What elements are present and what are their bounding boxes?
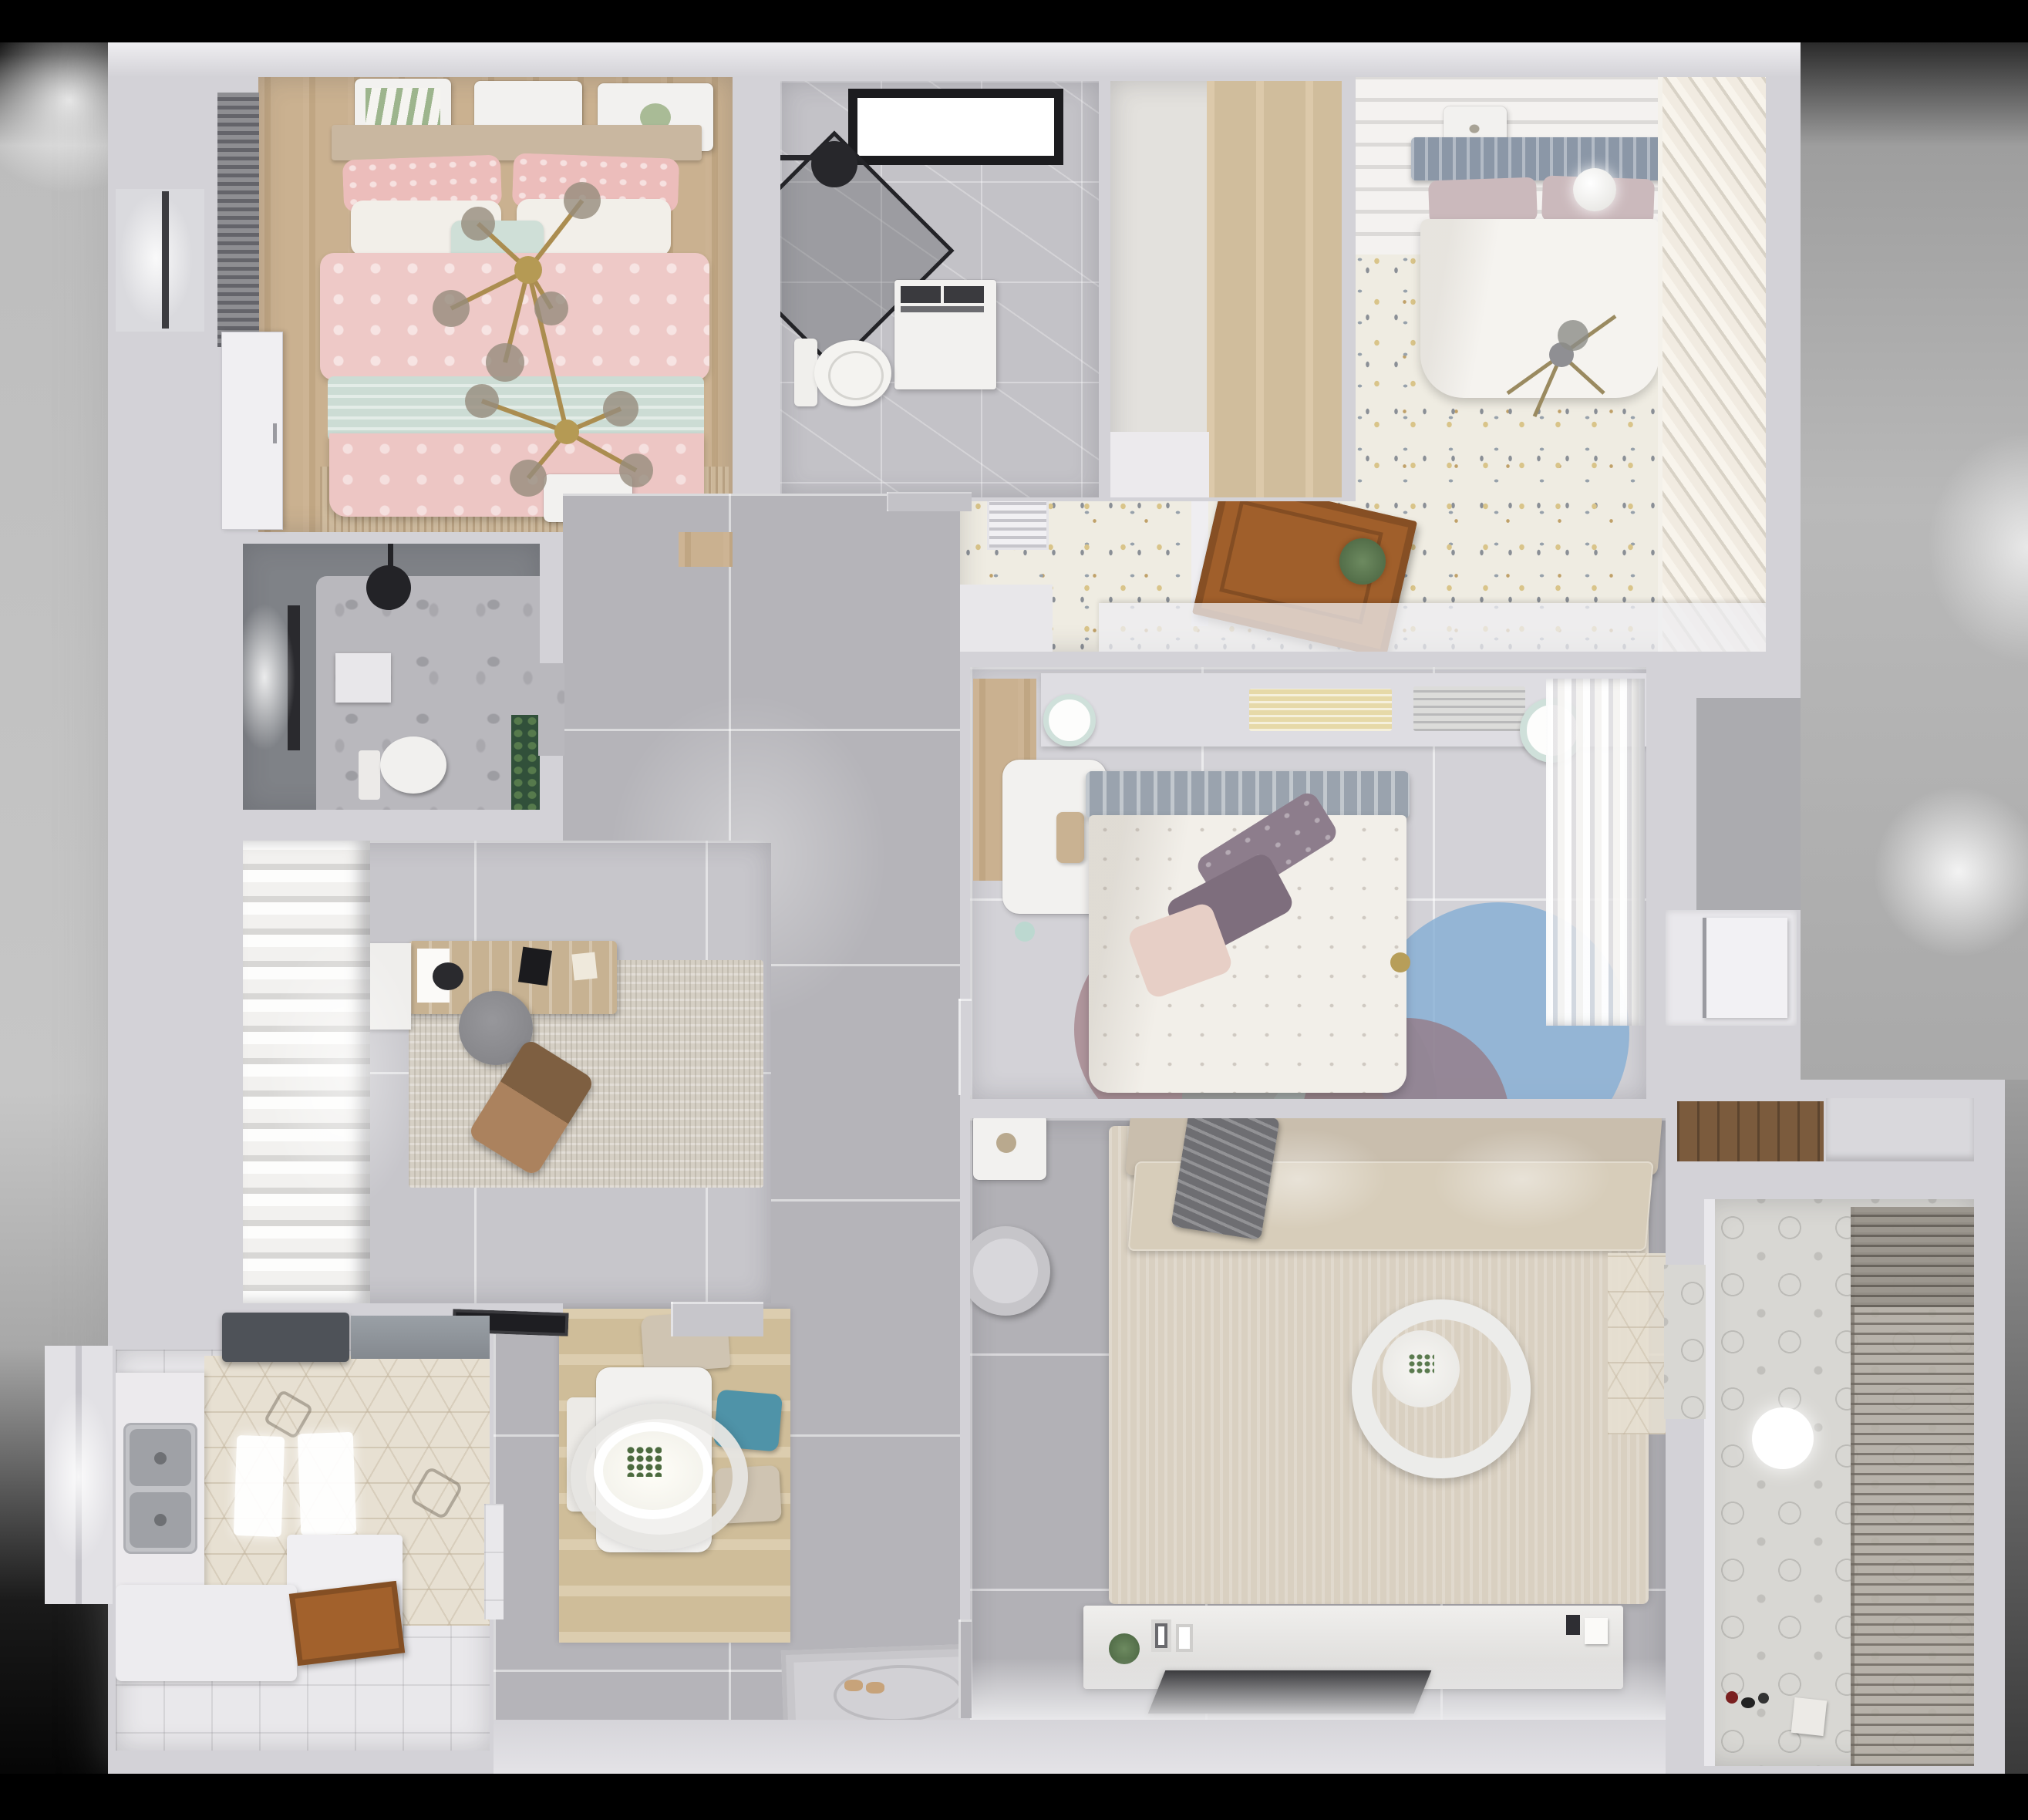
- study-laptop: [518, 947, 552, 986]
- living-bottom-fade: [970, 1658, 1666, 1720]
- sofa-sheen-2: [1429, 1129, 1615, 1229]
- bath2-toilet-tank: [359, 750, 380, 800]
- dining-pendant-greenery: [626, 1446, 662, 1477]
- kitchen-range-hood: [222, 1313, 349, 1362]
- room-master-bedroom: [970, 667, 1646, 1099]
- master-mint-bottle: [1015, 922, 1035, 942]
- bedroom2-sphere-lamp: [1573, 168, 1616, 211]
- living-side-table: [973, 1118, 1046, 1180]
- bedroom2-louvered-wardrobe: [1658, 77, 1766, 652]
- bedroom2-pillow-left: [1428, 177, 1538, 226]
- doorway-kitchen: [484, 1504, 504, 1619]
- room-bathroom-2: [243, 544, 540, 810]
- wall-top-highlight: [108, 42, 1801, 77]
- master-stool-left: [1043, 694, 1096, 747]
- sink-basin-bottom: [130, 1492, 191, 1548]
- kitchen-gray-counter: [351, 1316, 490, 1359]
- kitchen-island-counter: [116, 1585, 297, 1681]
- room-hallway-closet: [1110, 81, 1342, 497]
- doorway-balcony: [1664, 1265, 1706, 1419]
- room-bathroom-1: [780, 81, 1099, 497]
- bath1-toilet-bowl: [814, 340, 891, 406]
- console-frame-1: [1151, 1619, 1171, 1652]
- alcove-door-leaf: [1703, 918, 1787, 1018]
- doorway-living-dining: [958, 1619, 972, 1718]
- side-table-item: [996, 1133, 1016, 1153]
- doorway-bedroom1: [679, 532, 733, 567]
- balcony-niche-white-cabinet: [1826, 1098, 1974, 1161]
- closet-wood-floor: [1207, 81, 1342, 497]
- bath2-shower-mat: [335, 653, 391, 703]
- room-kitchen: [116, 1350, 490, 1751]
- bedroom2-ac-vent: [987, 496, 1049, 550]
- living-armchair-seat: [973, 1239, 1038, 1303]
- exterior-top-strip: [0, 0, 2028, 42]
- entry-shoes: [844, 1680, 863, 1691]
- coffee-table-sprig: [1408, 1353, 1434, 1375]
- master-headboard: [1086, 771, 1410, 819]
- study-desk-lamp: [433, 962, 463, 990]
- toilet-seat-line: [828, 351, 884, 400]
- doorway-study-dining: [671, 1302, 763, 1336]
- window-light: [120, 193, 193, 324]
- bedroom2-low-ledge-left: [960, 585, 1053, 652]
- kitchen-entry-door: [289, 1581, 405, 1666]
- bath1-shower-head: [811, 141, 857, 187]
- doormat-ornament: [833, 1663, 960, 1720]
- vanity-inlay-left: [901, 286, 941, 303]
- bath2-toilet-bowl: [380, 736, 446, 794]
- entry-doormat: [781, 1643, 960, 1720]
- living-hex-threshold: [1608, 1253, 1666, 1434]
- kitchen-window: [45, 1346, 113, 1604]
- bath1-skylight: [848, 89, 1063, 165]
- sink-drain-top: [154, 1452, 167, 1464]
- vanity-inlay-line: [901, 306, 984, 312]
- master-books-yellow: [1249, 689, 1392, 731]
- bedroom1-open-door-white: [221, 332, 283, 530]
- bath2-window-light: [243, 604, 295, 750]
- bedroom2-gold-ceiling-light: [1461, 270, 1662, 455]
- exterior-right-blob-2: [1928, 432, 2028, 663]
- balcony-pendant-light: [1752, 1407, 1814, 1469]
- bath1-vanity: [894, 280, 996, 389]
- study-notebook: [571, 952, 597, 981]
- balcony-toy-3: [1758, 1693, 1769, 1704]
- balcony-toy-1: [1726, 1691, 1738, 1704]
- exterior-right-blob: [1874, 787, 2028, 956]
- sink-basin-top: [130, 1429, 191, 1486]
- doorway-bath1: [887, 492, 972, 511]
- doorway-bath2: [538, 663, 564, 756]
- bath2-plant-strip: [511, 715, 540, 810]
- balcony-niche-wood-shelf: [1677, 1101, 1824, 1161]
- master-desk-stool: [1056, 812, 1084, 863]
- console-item-dark: [1566, 1615, 1580, 1635]
- right-alcove: [1666, 910, 1797, 1026]
- room-balcony: [1704, 1199, 1974, 1766]
- kitchen-bright-mat-1: [234, 1435, 285, 1537]
- study-curtain-glow: [266, 933, 420, 1211]
- kitchen-sink-unit: [123, 1423, 197, 1554]
- bedroom2-headboard-shelf: [1411, 137, 1673, 180]
- closet-white-panel: [1110, 432, 1209, 497]
- master-sheer-curtain: [1546, 679, 1645, 1026]
- room-study: [243, 841, 771, 1303]
- kitchen-bright-mat-2: [298, 1432, 357, 1535]
- bedroom2-plant: [1339, 538, 1386, 585]
- bedroom1-window: [116, 189, 204, 332]
- master-gold-dot: [1390, 952, 1410, 972]
- vanity-inlay-right: [944, 286, 984, 303]
- window-frame-bar: [162, 191, 169, 329]
- balcony-rack-top-dense: [1851, 1207, 1974, 1307]
- kitchen-window-glow: [45, 1392, 113, 1562]
- door-handle: [273, 423, 277, 443]
- console-frame-2: [1176, 1624, 1193, 1652]
- bedroom1-gold-chandelier: [389, 108, 721, 509]
- balcony-toy-2: [1741, 1697, 1755, 1708]
- doorway-master: [958, 999, 972, 1095]
- sink-drain-bottom: [154, 1514, 167, 1526]
- floorplan-stage: [0, 0, 2028, 1820]
- master-books-gray: [1413, 686, 1525, 731]
- balcony-left-sill: [1704, 1199, 1715, 1766]
- entry-bottom-band: [494, 1720, 1666, 1774]
- bedroom2-low-ledge-band: [1099, 603, 1766, 652]
- balcony-white-box: [1791, 1697, 1828, 1736]
- exterior-right-edge: [2005, 1080, 2028, 1774]
- exterior-right-mid: [1696, 698, 1801, 910]
- room-bedroom-1: [258, 77, 733, 532]
- bath2-shower-head: [366, 565, 411, 610]
- room-living: [970, 1118, 1666, 1720]
- bedroom1-roman-blind: [217, 93, 259, 347]
- console-item-white: [1585, 1618, 1608, 1644]
- exterior-bottom-strip: [0, 1774, 2028, 1820]
